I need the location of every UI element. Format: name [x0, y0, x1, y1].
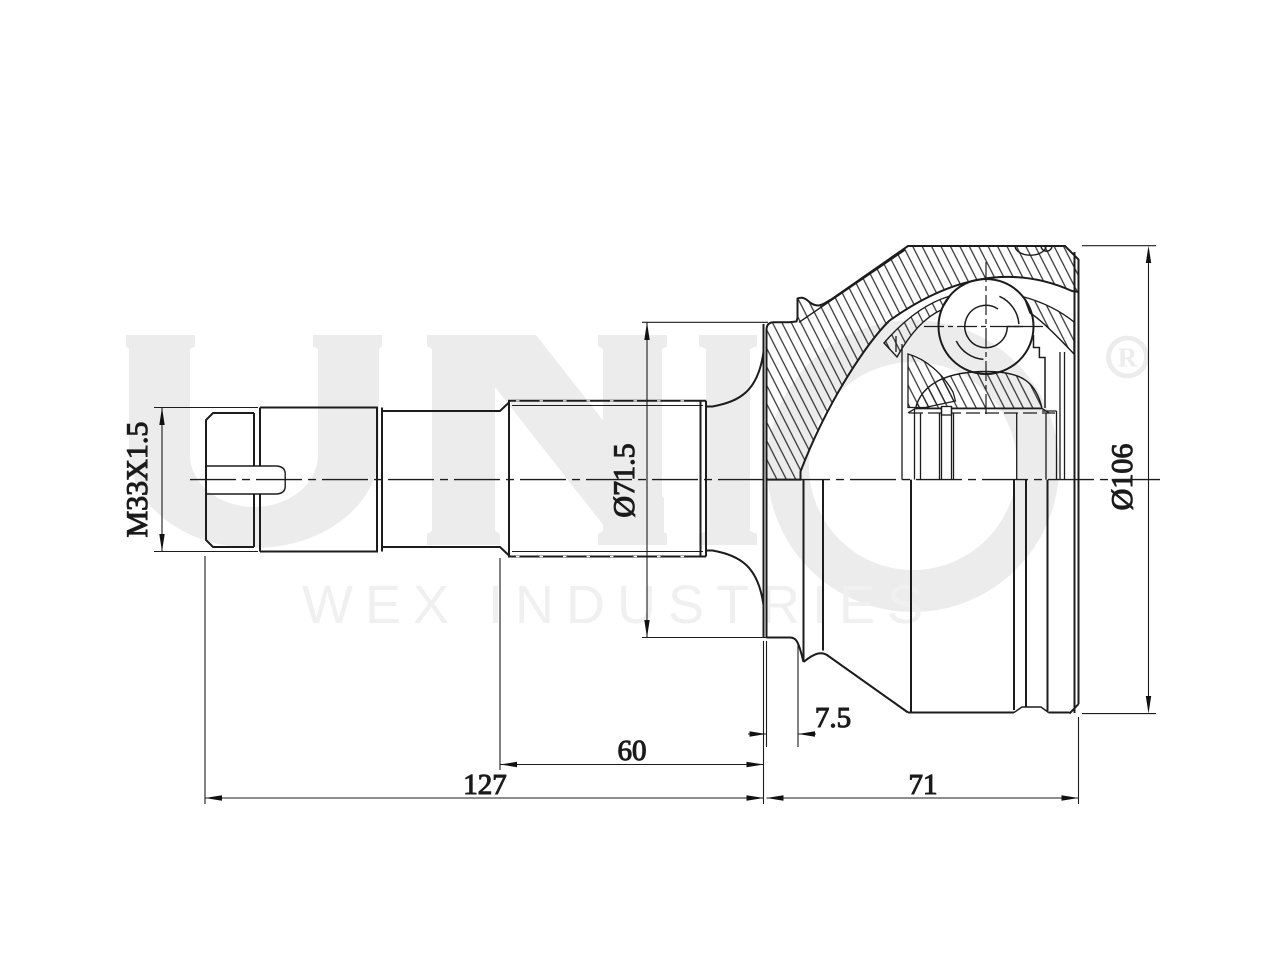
- svg-text:WEX INDUSTRIES: WEX INDUSTRIES: [302, 575, 935, 635]
- svg-text:71: 71: [909, 769, 938, 801]
- svg-text:R: R: [1118, 343, 1138, 373]
- svg-text:7.5: 7.5: [815, 702, 851, 734]
- svg-text:M33X1.5: M33X1.5: [121, 422, 154, 538]
- svg-text:Ø106: Ø106: [1106, 444, 1139, 511]
- svg-text:60: 60: [618, 735, 647, 767]
- svg-text:Ø71.5: Ø71.5: [608, 443, 641, 517]
- svg-text:127: 127: [463, 769, 507, 801]
